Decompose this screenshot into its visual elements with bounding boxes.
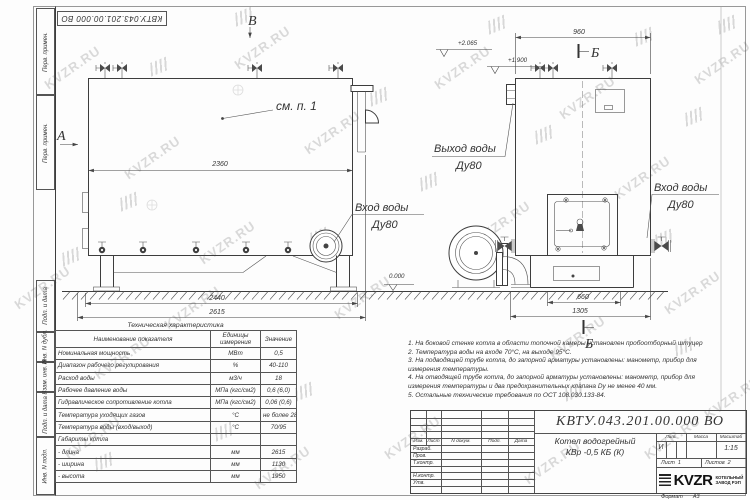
title-block-doc-number: КВТУ.043.201.00.000 ВО [534, 411, 746, 433]
elevation-zero: 0.000 [389, 273, 405, 280]
tech-table-row: Диапазон рабочего регулирования%40-110 [56, 360, 297, 372]
tech-table-row: Номинальная мощностьМВт0,5 [56, 348, 297, 360]
sheet-cell: Лист 1 [661, 460, 681, 466]
tech-table-row: Расход водым3/ч18 [56, 372, 297, 384]
title-block-line [508, 411, 509, 493]
sheets-cell: Листов 2 [705, 460, 731, 466]
title-block-line [656, 441, 746, 442]
top-left-doc-number-box: КВТУ.043.201.00.000 ВО [57, 11, 167, 26]
kvzr-logo-subtitle: КОТЕЛЬНЫЙ ЗАВОД РЭП [715, 475, 743, 485]
title-block-line [676, 441, 677, 458]
tech-table-row: Габариты котла [56, 434, 297, 446]
scale-label: Масштаб [716, 435, 746, 440]
title-block-line [411, 445, 534, 446]
tech-table-row: Гидравлическое сопротивление котлаМПа (к… [56, 397, 297, 409]
tech-col-value: Значение [261, 331, 297, 348]
kvzr-logo-text: KVZR [674, 472, 713, 489]
callout-outlet-line1: Выход воды [434, 143, 496, 155]
tech-table-title: Техническая характеристика [55, 322, 296, 329]
title-block-line [426, 411, 427, 445]
company-logo: KVZR КОТЕЛЬНЫЙ ЗАВОД РЭП [656, 467, 746, 493]
scale-value: 1:15 [716, 445, 746, 452]
tech-table: Наименование показателя Единицы измерени… [55, 330, 297, 483]
front-base [531, 256, 634, 288]
dim-upper-length: 2360 [211, 161, 228, 168]
title-block-line [686, 433, 687, 458]
kvzr-spring-icon [659, 474, 671, 486]
burner-flange [310, 230, 342, 262]
margin-block: Взам. инв. N [36, 362, 55, 392]
col-list: Лист [426, 439, 441, 444]
dimensions: 2360 2440 2615 960 660 1305 [78, 29, 651, 321]
tech-table-row: Рабочее давление водыМПа (кгс/см2)0,6 (6… [56, 384, 297, 396]
drawing-sheet: KVZR.RUKVZR.RUKVZR.RUKVZR.RUKVZR.RUKVZR.… [0, 0, 750, 500]
tech-table-row: - ширинамм1130 [56, 458, 297, 470]
callout-inlet-left-line1: Вход воды [355, 202, 408, 214]
callout-inlet-right-line1: Вход воды [654, 182, 707, 194]
title-block-line [481, 411, 482, 493]
title-block-line [441, 411, 442, 493]
title-block-line [701, 458, 702, 467]
title-block-line [411, 459, 534, 460]
top-left-doc-number: КВТУ.043.201.00.000 ВО [61, 14, 162, 23]
note-line: 4. На отводящей трубе котла, до запорной… [408, 374, 748, 383]
title-block-line [411, 431, 534, 432]
role-utv: Утв. [413, 480, 425, 486]
title-block: КВТУ.043.201.00.000 ВО Котел водогрейный… [410, 410, 747, 494]
lifting-marks [147, 85, 243, 210]
lit-value: И [656, 444, 666, 451]
title-block-line [411, 466, 534, 467]
section-marker-v: В [248, 14, 257, 29]
dim-base-width: 660 [577, 294, 589, 301]
note-line: 5. Остальные технические требования по О… [408, 392, 748, 401]
role-nkontr: Н.контр. [413, 473, 435, 479]
section-markers: А В Б Б [56, 14, 599, 352]
tech-table-row: Температура воды (вход/выход)°С70/95 [56, 421, 297, 433]
title-block-line [411, 425, 534, 426]
title-block-line [411, 486, 534, 487]
callout-outlet-line2: Ду80 [454, 160, 482, 172]
title-block-line [666, 441, 667, 458]
tech-col-name: Наименование показателя [56, 331, 211, 348]
title-block-line [656, 458, 746, 459]
note-line: 2. Температура воды на входе 70°С, на вы… [408, 349, 748, 358]
tech-table-row: - высотамм1950 [56, 470, 297, 482]
tech-col-units: Единицы измерения [211, 331, 261, 348]
callout-inlet-left-line2: Ду80 [370, 219, 398, 231]
col-izm: Изм. [411, 439, 426, 444]
callout-see-item: см. п. 1 [276, 99, 317, 113]
note-line: 3. На подводящей трубе котла, до запорно… [408, 357, 748, 366]
margin-block: Инв. N дубл. [36, 332, 55, 362]
title-block-line [656, 433, 657, 493]
title-block-line [411, 452, 534, 453]
title-block-line [411, 438, 534, 439]
title-block-line [656, 467, 746, 468]
mass-label: Масса [686, 435, 716, 440]
elevation-top: +2.065 [458, 40, 478, 47]
title-block-line [411, 479, 534, 480]
product-name: Котел водогрейный КВр -0,5 КБ (К) [534, 436, 656, 458]
title-block-line [411, 418, 534, 419]
air-duct-elbow [497, 253, 532, 288]
margin-block: Перв. примен. [36, 95, 55, 190]
title-block-line [716, 433, 717, 458]
dim-front-width: 960 [573, 29, 585, 36]
col-podp: Подп. [481, 439, 508, 444]
title-block-line [534, 411, 535, 493]
section-marker-a: А [56, 129, 66, 144]
elevation-upper: +1.900 [508, 57, 528, 64]
boiler-side-view [83, 62, 379, 291]
format-cell: ФорматА3 [661, 494, 700, 500]
tech-table-row: - длинамм2615 [56, 446, 297, 458]
title-block-line [534, 433, 746, 434]
lit-label: Лит. [656, 435, 686, 440]
support-frame [94, 256, 357, 292]
dim-frame-length: 2440 [208, 295, 225, 302]
margin-block: Подп. и дата [36, 392, 55, 437]
outlet-pipe [351, 86, 379, 153]
note-line: измерения температуры и два предохраните… [408, 383, 748, 392]
col-dokum: N докум. [441, 439, 481, 444]
product-name-line2: КВр -0,5 КБ (К) [534, 447, 656, 458]
note-line: 1. На боковой стенке котла в области топ… [408, 340, 748, 349]
tech-table-block: Техническая характеристика Наименование … [55, 322, 296, 483]
dim-overall-length: 2615 [208, 309, 225, 316]
boiler-front-view [496, 62, 671, 288]
title-block-line [411, 472, 534, 473]
margin-block: Перв. примен. [36, 8, 55, 95]
technical-notes: 1. На боковой стенке котла в области топ… [408, 340, 748, 400]
margin-block: Подп. и дата [36, 280, 55, 332]
callout-inlet-right-line2: Ду80 [666, 199, 694, 211]
dim-overall-width: 1305 [572, 308, 588, 315]
col-data: Дата [508, 439, 534, 444]
margin-block: Инв. N подл. [36, 437, 55, 495]
tech-table-row: Температура уходящих газов°Сне более 280 [56, 409, 297, 421]
section-marker-b-top: Б [590, 46, 599, 61]
product-name-line1: Котел водогрейный [534, 436, 656, 447]
